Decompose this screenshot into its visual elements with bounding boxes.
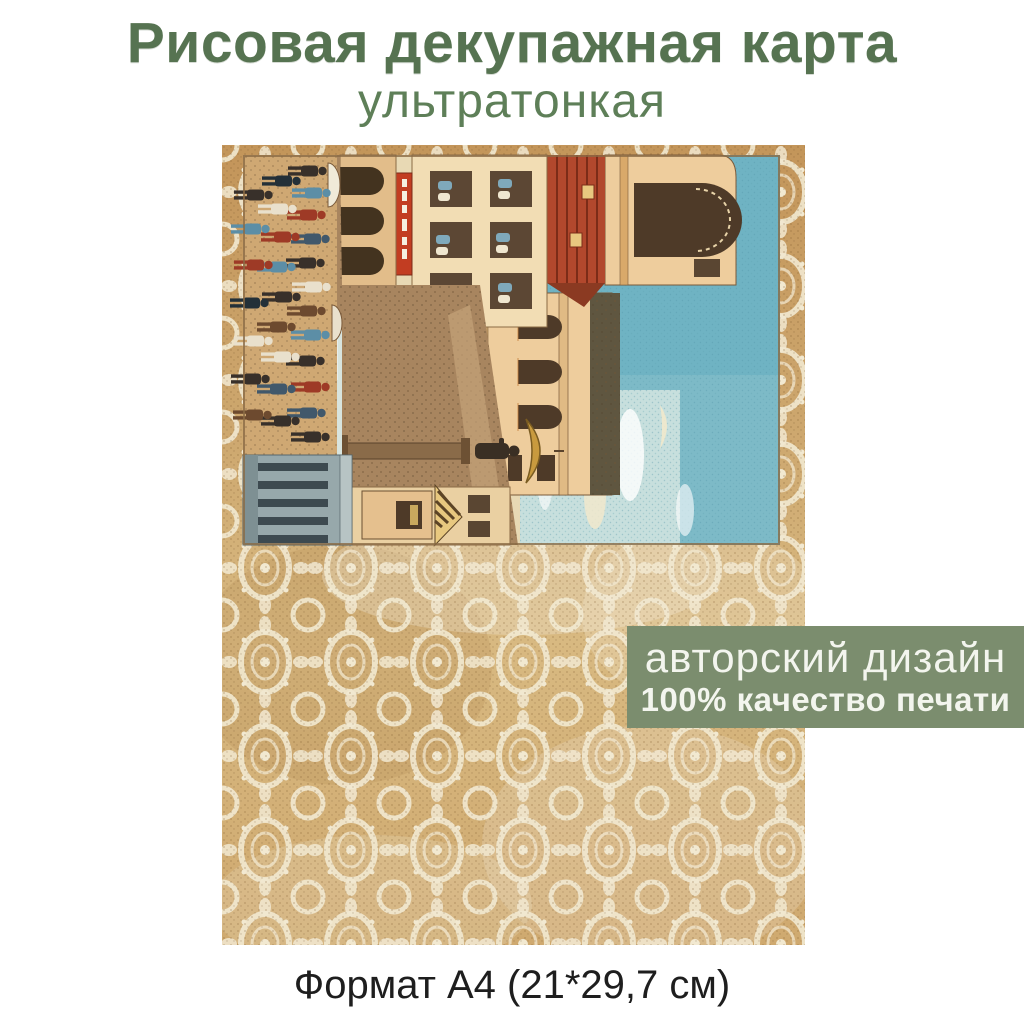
badge-line-author-design: авторский дизайн [627,636,1024,680]
product-subtitle: ультратонкая [0,74,1024,129]
badge-line-print-quality: 100% качество печати [627,682,1024,718]
page-root: Рисовая декупажная карта ультратонкая [0,0,1024,1024]
design-badge: авторский дизайн 100% качество печати [627,626,1024,728]
shop-sign [396,173,412,275]
kiosk [340,485,510,545]
format-caption: Формат А4 (21*29,7 см) [0,963,1024,1008]
arch-tower [605,155,742,285]
decoupage-sheet [222,145,805,945]
vintage-print [230,155,780,545]
colonnade-building [243,455,352,545]
red-roof [547,155,605,307]
product-title: Рисовая декупажная карта [0,10,1024,76]
sheet-artwork [222,145,805,945]
